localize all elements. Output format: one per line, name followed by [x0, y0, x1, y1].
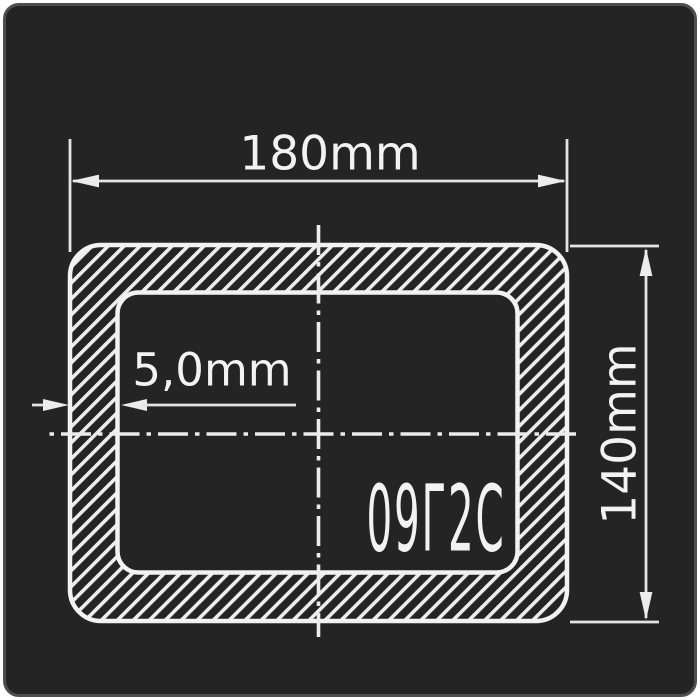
- thickness-arrow-outer-icon: [43, 399, 69, 411]
- tube-cross-section-diagram: 180mm 140mm 5,0mm 09Г2С: [0, 0, 700, 700]
- steel-grade-label: 09Г2С: [367, 465, 506, 572]
- arrowhead-down-icon: [640, 592, 653, 620]
- thickness-dimension-label: 5,0mm: [132, 344, 291, 397]
- arrowhead-right-icon: [538, 175, 566, 188]
- height-dimension: 140mm: [570, 246, 659, 622]
- width-dimension-label: 180mm: [239, 127, 420, 182]
- steel-grade-marking: 09Г2С: [367, 465, 506, 572]
- height-dimension-label: 140mm: [593, 343, 648, 524]
- arrowhead-up-icon: [640, 248, 653, 276]
- arrowhead-left-icon: [71, 175, 99, 188]
